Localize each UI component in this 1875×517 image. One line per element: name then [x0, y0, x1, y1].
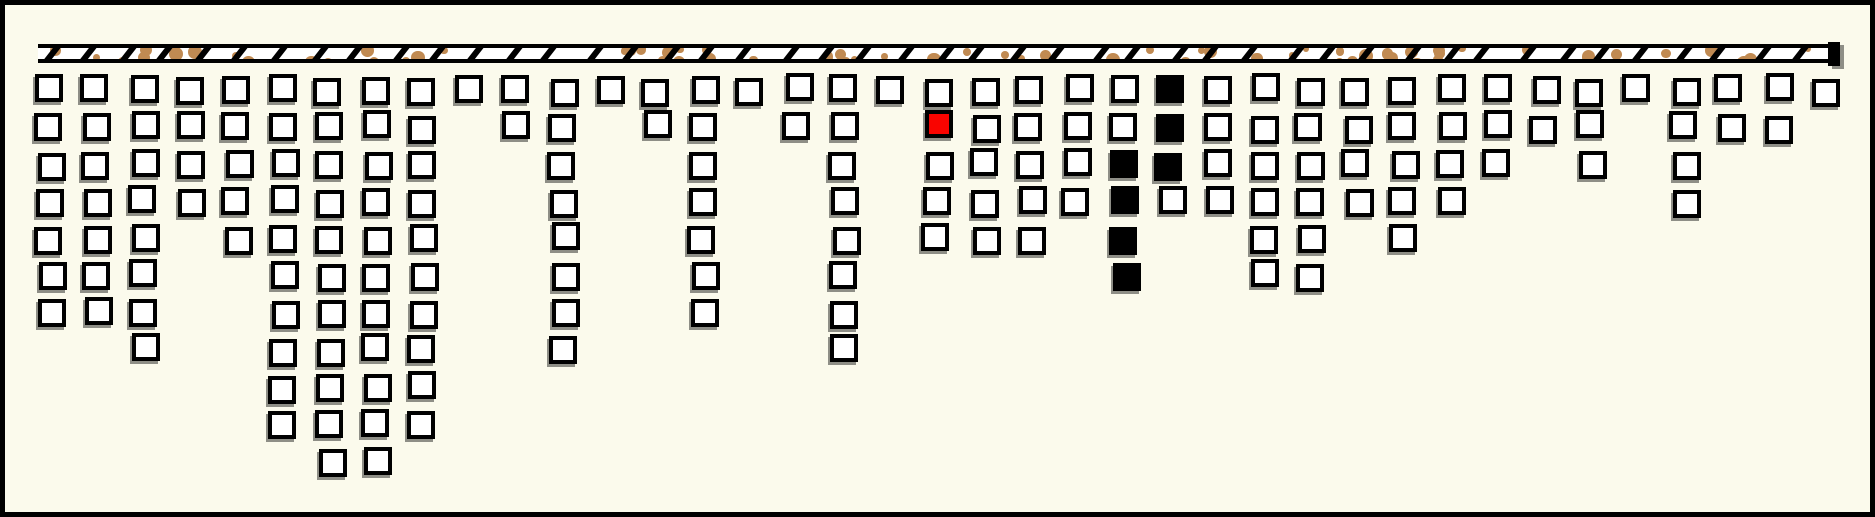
unit-square — [1298, 225, 1326, 253]
unit-square — [1533, 76, 1561, 104]
unit-square — [177, 151, 205, 179]
unit-square — [362, 77, 390, 105]
hatch-mark — [852, 44, 874, 63]
unit-square — [408, 151, 436, 179]
hatch-mark — [1316, 44, 1338, 63]
unit-square — [1204, 76, 1232, 104]
unit-square — [1015, 76, 1043, 104]
unit-square — [84, 189, 112, 217]
unit-square — [1204, 113, 1232, 141]
unit-square — [132, 224, 160, 252]
unit-square — [84, 226, 112, 254]
unit-square — [786, 73, 814, 101]
unit-square — [597, 76, 625, 104]
unit-square — [1482, 149, 1510, 177]
unit-square — [365, 152, 393, 180]
unit-square — [226, 150, 254, 178]
unit-square-black — [1109, 227, 1137, 255]
hatch-mark — [1517, 44, 1539, 63]
speckle-dot — [749, 56, 757, 63]
unit-square — [407, 78, 435, 106]
unit-square — [176, 77, 204, 105]
unit-square — [315, 151, 343, 179]
unit-square — [316, 374, 344, 402]
speckle-dot — [1433, 45, 1444, 56]
unit-square — [1251, 259, 1279, 287]
hatch-mark — [895, 44, 917, 63]
unit-square — [501, 75, 529, 103]
unit-square — [830, 334, 858, 362]
hatch-mark — [1752, 44, 1774, 63]
unit-square — [1251, 116, 1279, 144]
unit-square — [364, 374, 392, 402]
ceiling-bar-endcap — [1828, 42, 1840, 66]
unit-square — [1346, 189, 1374, 217]
unit-square — [132, 149, 160, 177]
speckle-dot — [1146, 46, 1154, 54]
unit-square — [1251, 188, 1279, 216]
speckle-dot — [1001, 51, 1009, 59]
speckle-dot — [1611, 49, 1622, 60]
unit-square — [1066, 74, 1094, 102]
speckle-dot — [1198, 47, 1205, 54]
unit-square — [408, 371, 436, 399]
ceiling-bar — [38, 44, 1840, 63]
unit-square — [1252, 73, 1280, 101]
unit-square — [131, 75, 159, 103]
unit-square — [269, 74, 297, 102]
unit-square — [269, 339, 297, 367]
speckle-dot — [402, 57, 411, 63]
unit-square — [1206, 186, 1234, 214]
unit-square — [735, 78, 763, 106]
hatch-mark — [1007, 44, 1029, 63]
unit-square — [548, 114, 576, 142]
speckle-dot — [963, 48, 971, 56]
speckle-dot — [881, 53, 888, 60]
unit-square — [410, 301, 438, 329]
unit-square — [973, 227, 1001, 255]
unit-square — [1529, 116, 1557, 144]
unit-square — [272, 149, 300, 177]
hatch-mark — [1629, 44, 1651, 63]
unit-square — [362, 300, 390, 328]
unit-square-black — [1156, 75, 1184, 103]
unit-square — [80, 74, 108, 102]
unit-square — [1579, 151, 1607, 179]
unit-square — [315, 226, 343, 254]
speckle-dot — [1251, 53, 1263, 64]
unit-square — [1296, 264, 1324, 292]
unit-square — [315, 112, 343, 140]
unit-square — [35, 74, 63, 102]
hatch-mark — [1673, 44, 1695, 63]
unit-square — [692, 76, 720, 104]
hatch-mark — [117, 44, 139, 63]
unit-square — [551, 79, 579, 107]
unit-square — [408, 190, 436, 218]
unit-square — [971, 190, 999, 218]
hatch-mark — [815, 44, 837, 63]
unit-square — [178, 189, 206, 217]
unit-square — [36, 189, 64, 217]
unit-square — [921, 223, 949, 251]
hatch-mark — [537, 44, 559, 63]
speckle-dot — [673, 56, 685, 63]
hatch-mark — [465, 44, 487, 63]
unit-square — [318, 264, 346, 292]
unit-square — [1436, 150, 1464, 178]
unit-square — [689, 188, 717, 216]
unit-square — [782, 112, 810, 140]
unit-square — [1673, 78, 1701, 106]
unit-square — [1204, 149, 1232, 177]
unit-square — [970, 148, 998, 176]
unit-square — [222, 76, 250, 104]
unit-square — [83, 113, 111, 141]
unit-square — [828, 152, 856, 180]
unit-square — [1388, 77, 1416, 105]
unit-square — [876, 76, 904, 104]
hatch-mark — [390, 44, 412, 63]
unit-square — [1388, 112, 1416, 140]
hatch-mark — [1121, 44, 1143, 63]
unit-square — [1296, 188, 1324, 216]
unit-square — [269, 113, 297, 141]
unit-square — [1297, 152, 1325, 180]
unit-square — [1111, 75, 1139, 103]
speckle-dot — [323, 58, 334, 63]
unit-square — [1438, 187, 1466, 215]
unit-square — [1392, 151, 1420, 179]
unit-square — [129, 259, 157, 287]
unit-square — [128, 185, 156, 213]
unit-square — [1341, 149, 1369, 177]
unit-square — [1622, 74, 1650, 102]
unit-square — [923, 187, 951, 215]
hatch-mark — [1789, 44, 1811, 63]
unit-square — [1714, 74, 1742, 102]
unit-square — [552, 263, 580, 291]
speckle-dot — [242, 56, 255, 63]
speckle-dot — [361, 44, 374, 57]
hatch-mark — [1470, 44, 1492, 63]
unit-square — [313, 78, 341, 106]
unit-square — [362, 188, 390, 216]
unit-square — [689, 152, 717, 180]
unit-square — [129, 299, 157, 327]
unit-square — [972, 78, 1000, 106]
hatch-mark — [732, 44, 754, 63]
unit-square — [1766, 73, 1794, 101]
speckle-dot — [1385, 55, 1397, 63]
unit-square — [1669, 111, 1697, 139]
unit-square — [177, 111, 205, 139]
unit-square — [317, 339, 345, 367]
unit-square — [1294, 113, 1322, 141]
unit-square — [1812, 79, 1840, 107]
unit-square — [1765, 116, 1793, 144]
hatch-mark — [228, 44, 250, 63]
unit-square — [831, 112, 859, 140]
unit-square — [315, 410, 343, 438]
unit-square — [1718, 114, 1746, 142]
unit-square — [268, 411, 296, 439]
hatch-mark — [780, 44, 802, 63]
unit-square — [361, 333, 389, 361]
unit-square — [1673, 190, 1701, 218]
unit-square — [1064, 148, 1092, 176]
unit-square — [1575, 79, 1603, 107]
unit-square — [552, 222, 580, 250]
unit-square — [271, 261, 299, 289]
unit-square — [268, 376, 296, 404]
unit-square-black — [1156, 114, 1184, 142]
unit-square — [1297, 78, 1325, 106]
unit-square — [85, 297, 113, 325]
unit-square — [316, 190, 344, 218]
unit-square — [641, 79, 669, 107]
unit-square — [82, 262, 110, 290]
speckle-dot — [1180, 57, 1191, 63]
unit-square — [1673, 152, 1701, 180]
unit-square — [829, 261, 857, 289]
unit-square — [502, 111, 530, 139]
speckle-dot — [1106, 53, 1120, 63]
unit-square — [1484, 110, 1512, 138]
unit-square — [362, 264, 390, 292]
unit-square — [1439, 112, 1467, 140]
unit-square — [689, 113, 717, 141]
unit-square — [364, 227, 392, 255]
unit-square — [831, 187, 859, 215]
unit-square — [455, 75, 483, 103]
speckle-dot — [93, 54, 100, 61]
unit-square — [1438, 74, 1466, 102]
unit-square — [271, 185, 299, 213]
unit-square — [1018, 227, 1046, 255]
unit-square — [1251, 152, 1279, 180]
unit-square — [547, 152, 575, 180]
unit-square — [363, 110, 391, 138]
unit-square-black — [1154, 153, 1182, 181]
unit-square-red — [925, 110, 953, 138]
unit-square — [833, 227, 861, 255]
speckle-dot — [140, 44, 152, 56]
unit-square — [550, 190, 578, 218]
speckle-dot — [1661, 49, 1670, 58]
speckle-dot — [1336, 58, 1342, 63]
unit-square — [132, 333, 160, 361]
unit-square — [318, 300, 346, 328]
unit-square — [644, 110, 672, 138]
unit-square-black — [1110, 150, 1138, 178]
unit-square — [830, 301, 858, 329]
unit-square — [38, 299, 66, 327]
unit-square — [225, 227, 253, 255]
hatch-mark — [268, 44, 290, 63]
unit-square — [926, 152, 954, 180]
unit-square-black — [1111, 186, 1139, 214]
unit-square — [272, 301, 300, 329]
unit-square — [973, 115, 1001, 143]
speckle-dot — [369, 57, 379, 63]
unit-square — [1388, 187, 1416, 215]
unit-square — [319, 449, 347, 477]
hatch-mark — [584, 44, 606, 63]
unit-square — [691, 299, 719, 327]
unit-square — [1345, 116, 1373, 144]
hatch-mark — [503, 44, 525, 63]
unit-square — [1016, 151, 1044, 179]
unit-square — [34, 227, 62, 255]
unit-square — [411, 263, 439, 291]
unit-square — [410, 224, 438, 252]
unit-square — [1109, 113, 1137, 141]
unit-square — [81, 152, 109, 180]
unit-square — [1159, 186, 1187, 214]
speckle-dot — [411, 51, 425, 63]
unit-square — [692, 262, 720, 290]
speckle-dot — [1347, 56, 1358, 63]
unit-square — [361, 409, 389, 437]
speckle-dot — [1336, 47, 1344, 55]
unit-square — [1019, 186, 1047, 214]
unit-square — [1250, 226, 1278, 254]
unit-square — [34, 113, 62, 141]
unit-square-black — [1113, 263, 1141, 291]
comic-frame — [0, 0, 1875, 517]
unit-square — [1576, 110, 1604, 138]
unit-square — [221, 187, 249, 215]
hatch-mark — [1169, 44, 1191, 63]
unit-square — [132, 111, 160, 139]
speckle-dot — [1582, 50, 1596, 63]
unit-square — [1061, 188, 1089, 216]
hatch-mark — [309, 44, 331, 63]
hatch-mark — [935, 44, 957, 63]
unit-square — [925, 79, 953, 107]
hatch-mark — [1557, 44, 1579, 63]
unit-square — [407, 335, 435, 363]
unit-square — [407, 411, 435, 439]
unit-square — [39, 262, 67, 290]
unit-square — [1389, 224, 1417, 252]
hatch-mark — [1285, 44, 1307, 63]
unit-square — [1484, 74, 1512, 102]
unit-square — [38, 153, 66, 181]
unit-square — [1064, 112, 1092, 140]
unit-square — [364, 447, 392, 475]
unit-square — [269, 225, 297, 253]
speckle-dot — [1433, 55, 1442, 63]
unit-square — [552, 299, 580, 327]
unit-square — [829, 74, 857, 102]
unit-square — [1341, 78, 1369, 106]
unit-square — [408, 116, 436, 144]
unit-square — [1014, 113, 1042, 141]
unit-square — [549, 336, 577, 364]
unit-square — [687, 226, 715, 254]
unit-square — [221, 112, 249, 140]
